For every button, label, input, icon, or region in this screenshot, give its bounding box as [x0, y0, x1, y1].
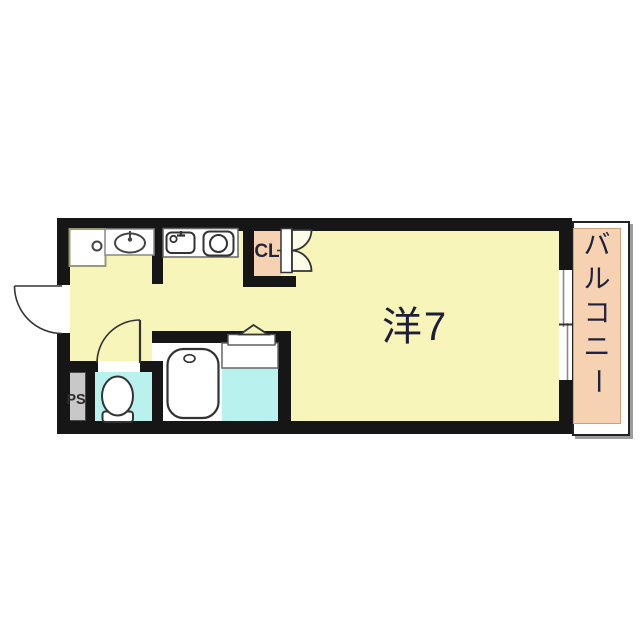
window-icon [559, 270, 572, 380]
washing-machine-pan-icon [70, 229, 106, 266]
room-label: 洋7 [382, 294, 448, 352]
closet-label: CL [254, 241, 279, 263]
vanity-sink-icon [105, 229, 154, 255]
kitchen-counter [163, 229, 238, 258]
entrance-door-arc-icon [15, 286, 63, 334]
stove-burner-icon [204, 232, 234, 256]
fixtures-layer [0, 0, 640, 640]
toilet-icon [102, 377, 133, 423]
kitchen-sink-icon [167, 231, 195, 253]
laundry-counter [222, 343, 278, 368]
toilet-door-threshold [98, 361, 140, 372]
floorplan: バ ル コ ニ ー [0, 0, 640, 640]
closet-bifold-doors-icon [277, 229, 312, 273]
washroom-door-icon [228, 325, 275, 345]
bathtub-icon [163, 343, 222, 421]
entrance-opening [57, 285, 70, 333]
pipe-space-label: PS [66, 392, 85, 408]
toilet-door-arc-icon [97, 320, 140, 363]
